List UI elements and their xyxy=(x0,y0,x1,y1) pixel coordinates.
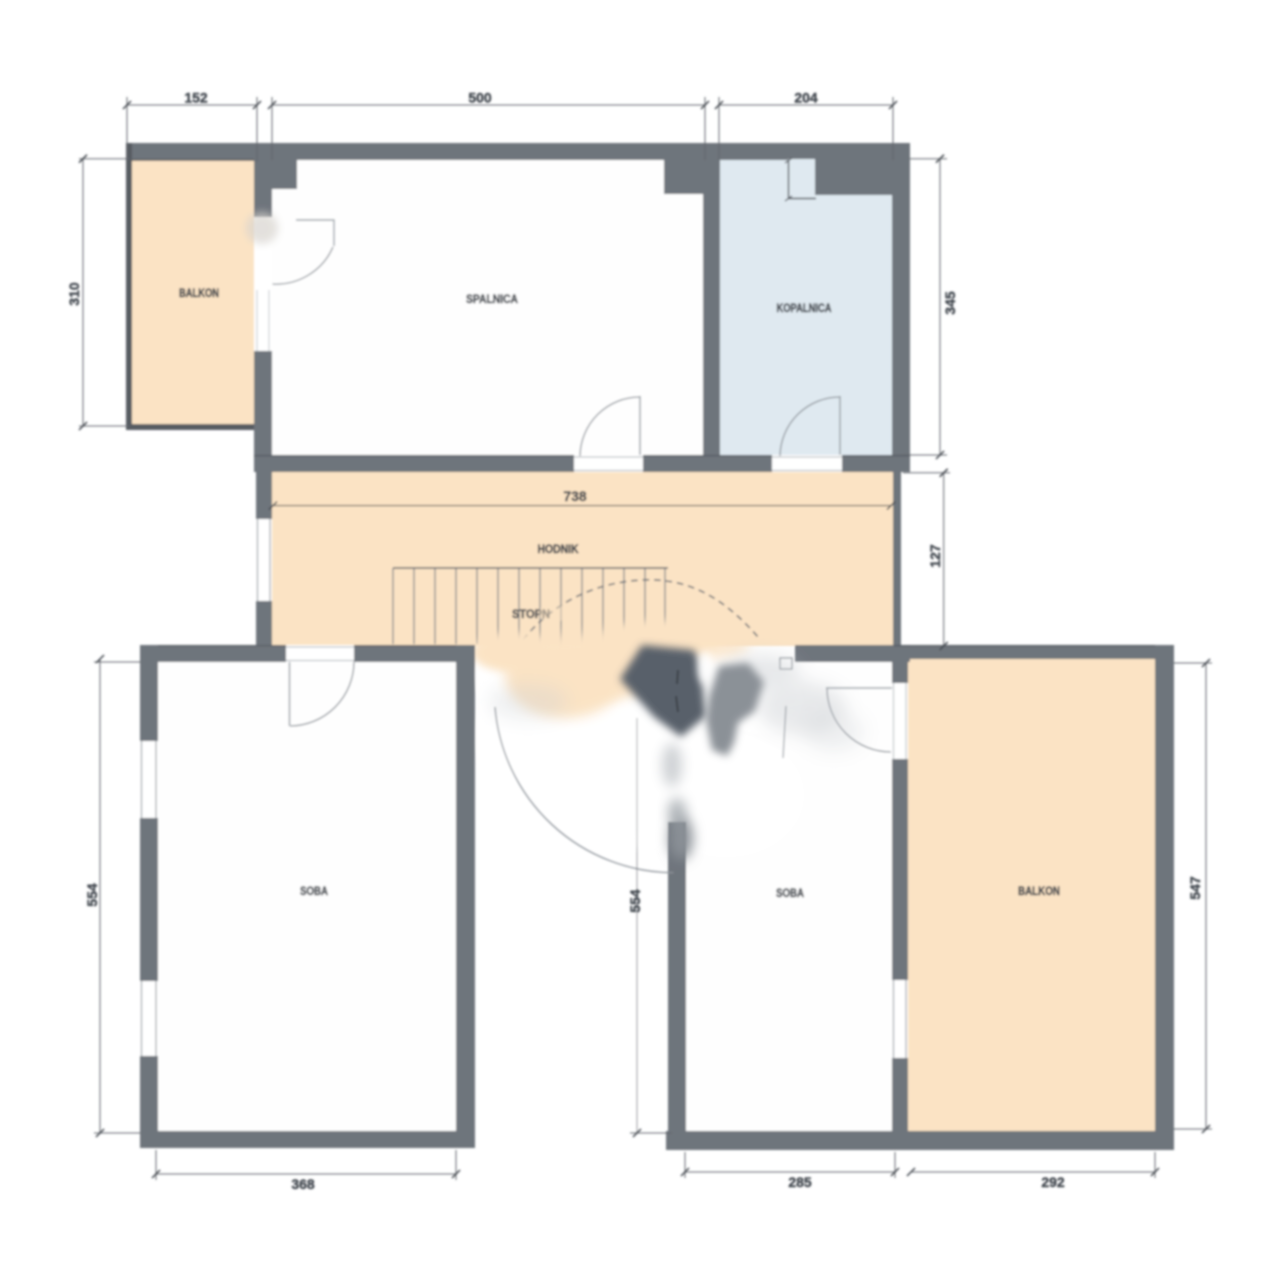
svg-text:BALKON: BALKON xyxy=(1018,884,1060,898)
svg-text:KOPALNICA: KOPALNICA xyxy=(777,301,832,315)
svg-text:204: 204 xyxy=(794,90,818,106)
svg-text:500: 500 xyxy=(468,90,492,106)
svg-text:SOBA: SOBA xyxy=(300,884,328,898)
svg-text:HODNIK: HODNIK xyxy=(538,542,579,556)
svg-text:368: 368 xyxy=(291,1176,315,1192)
svg-text:738: 738 xyxy=(563,488,587,504)
svg-text:547: 547 xyxy=(1187,876,1203,900)
svg-text:127: 127 xyxy=(927,544,943,568)
svg-text:554: 554 xyxy=(627,889,643,913)
svg-text:BALKON: BALKON xyxy=(179,286,219,300)
svg-text:285: 285 xyxy=(788,1174,812,1190)
svg-text:292: 292 xyxy=(1041,1174,1065,1190)
svg-text:345: 345 xyxy=(942,291,958,315)
svg-text:152: 152 xyxy=(184,90,208,106)
svg-text:SOBA: SOBA xyxy=(776,886,804,900)
svg-text:554: 554 xyxy=(84,883,100,907)
svg-text:310: 310 xyxy=(66,282,82,306)
svg-text:SPALNICA: SPALNICA xyxy=(466,292,518,306)
